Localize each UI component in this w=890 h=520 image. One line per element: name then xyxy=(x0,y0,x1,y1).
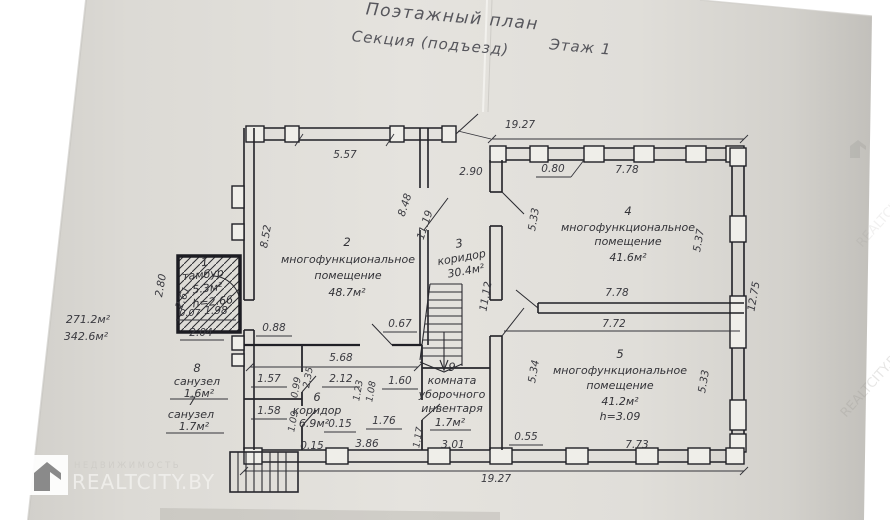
dim-7-78-top: 7.78 xyxy=(615,164,639,176)
dim-1-58: 1.58 xyxy=(257,405,281,417)
total-area-2: 342.6м² xyxy=(64,330,109,343)
room-5-number: 5 xyxy=(616,347,623,361)
dim-2-12: 2.12 xyxy=(329,373,353,385)
dim-1-57: 1.57 xyxy=(257,373,281,385)
dim-3-01: 3.01 xyxy=(441,439,464,451)
room-5-name-2: помещение xyxy=(586,379,653,392)
room-4-name-2: помещение xyxy=(594,235,661,248)
room-9-name-3: инвентаря xyxy=(421,402,483,415)
floor-plan-drawing: Поэтажный план Секция (подъезд) Этаж 1 xyxy=(0,0,890,520)
dim-1-76: 1.76 xyxy=(372,415,396,427)
room-8-area: 1.6м² xyxy=(184,387,215,400)
room-5-name-1: многофункциональное xyxy=(553,364,687,377)
dim-0-15-a: 0.15 xyxy=(328,418,352,430)
dim-0-15-b: 0.15 xyxy=(300,440,324,452)
room-2-number: 2 xyxy=(343,235,350,249)
dim-0-67: 0.67 xyxy=(388,318,412,330)
watermark-brand: REALTCITY.BY xyxy=(72,470,215,494)
scanned-floor-plan-page: Поэтажный план Секция (подъезд) Этаж 1 xyxy=(0,0,890,520)
room-9-name-2: уборочного xyxy=(418,388,486,401)
room-6-area: 6.9м² xyxy=(299,417,330,430)
dim-2-90: 2.90 xyxy=(459,166,483,178)
room-2-name-1: многофункциональное xyxy=(281,253,415,266)
room-4-number: 4 xyxy=(624,204,631,218)
total-area-1: 271.2м² xyxy=(66,313,111,326)
room-6-name: коридор xyxy=(293,404,342,417)
dim-19-27-top: 19.27 xyxy=(505,119,535,131)
room-4-name-1: многофункциональное xyxy=(561,221,695,234)
dim-7-73: 7.73 xyxy=(625,439,648,451)
dim-2-04: 2.04 xyxy=(189,327,212,339)
room-9-name-1: комната xyxy=(428,374,477,387)
dim-1-60: 1.60 xyxy=(388,375,412,387)
room-5-area: 41.2м² xyxy=(601,395,639,408)
room-2-name-2: помещение xyxy=(314,269,381,282)
room-4-area: 41.6м² xyxy=(609,251,647,264)
room-7-area: 1.7м² xyxy=(179,420,210,433)
dim-0-80: 0.80 xyxy=(541,163,565,175)
dim-7-72: 7.72 xyxy=(602,318,626,330)
room-5-height: h=3.09 xyxy=(600,410,641,423)
room-8-number: 8 xyxy=(193,361,200,375)
dim-7-78-mid: 7.78 xyxy=(605,287,629,299)
dim-0-55: 0.55 xyxy=(514,431,538,443)
dim-3-86: 3.86 xyxy=(355,438,379,450)
room-9-number: 9 xyxy=(448,360,455,374)
dim-5-68: 5.68 xyxy=(329,352,353,364)
room-6-number: 6 xyxy=(313,390,320,404)
room-2-area: 48.7м² xyxy=(328,286,366,299)
dim-19-27-bottom: 19.27 xyxy=(481,473,511,485)
dim-0-88: 0.88 xyxy=(262,322,286,334)
room-9-area: 1.7м² xyxy=(435,416,466,429)
dim-5-57: 5.57 xyxy=(333,149,357,161)
